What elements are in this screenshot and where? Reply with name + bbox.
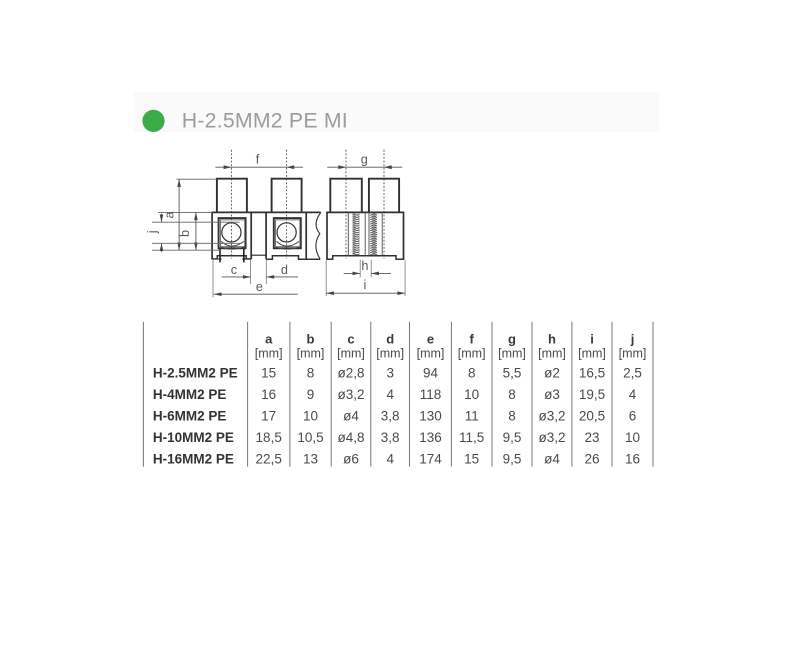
- svg-text:[mm]: [mm]: [337, 347, 365, 361]
- svg-text:[mm]: [mm]: [376, 347, 404, 361]
- svg-text:11: 11: [465, 409, 479, 424]
- svg-text:i: i: [363, 278, 366, 292]
- svg-text:H-6MM2 PE: H-6MM2 PE: [153, 409, 227, 424]
- svg-text:ø2: ø2: [544, 366, 560, 381]
- svg-text:g: g: [508, 332, 516, 347]
- svg-text:[mm]: [mm]: [255, 347, 283, 361]
- svg-text:4: 4: [629, 387, 637, 402]
- svg-text:h: h: [361, 259, 368, 273]
- svg-text:d: d: [281, 263, 288, 277]
- svg-text:ø3,2: ø3,2: [538, 430, 565, 445]
- svg-text:g: g: [361, 153, 368, 167]
- svg-text:b: b: [307, 332, 315, 347]
- svg-text:2,5: 2,5: [623, 366, 642, 381]
- svg-text:22,5: 22,5: [256, 452, 282, 467]
- svg-text:20,5: 20,5: [579, 409, 605, 424]
- svg-text:15: 15: [261, 366, 276, 381]
- svg-text:e: e: [427, 332, 434, 347]
- svg-text:10: 10: [303, 409, 318, 424]
- svg-text:d: d: [386, 332, 394, 347]
- svg-text:[mm]: [mm]: [417, 347, 445, 361]
- svg-text:[mm]: [mm]: [538, 347, 566, 361]
- svg-text:[mm]: [mm]: [619, 347, 647, 361]
- svg-text:19,5: 19,5: [579, 387, 605, 402]
- svg-text:9: 9: [307, 387, 315, 402]
- svg-text:174: 174: [419, 452, 442, 467]
- svg-text:H-10MM2 PE: H-10MM2 PE: [153, 430, 234, 445]
- svg-text:ø4: ø4: [343, 409, 359, 424]
- svg-text:18,5: 18,5: [256, 430, 282, 445]
- svg-text:[mm]: [mm]: [498, 347, 526, 361]
- svg-text:a: a: [265, 332, 273, 347]
- svg-text:10,5: 10,5: [297, 430, 323, 445]
- svg-text:H-4MM2 PE: H-4MM2 PE: [153, 387, 227, 402]
- svg-text:8: 8: [508, 409, 516, 424]
- svg-text:e: e: [256, 280, 263, 294]
- svg-text:ø3: ø3: [544, 387, 560, 402]
- svg-text:f: f: [470, 332, 475, 347]
- svg-text:h: h: [548, 332, 556, 347]
- svg-text:ø3,2: ø3,2: [538, 409, 565, 424]
- svg-text:3,8: 3,8: [381, 430, 400, 445]
- svg-text:[mm]: [mm]: [297, 347, 325, 361]
- svg-text:8: 8: [307, 366, 315, 381]
- svg-text:16,5: 16,5: [579, 366, 605, 381]
- svg-text:8: 8: [468, 366, 476, 381]
- svg-text:5,5: 5,5: [503, 366, 522, 381]
- svg-text:3: 3: [386, 366, 394, 381]
- svg-text:26: 26: [584, 452, 599, 467]
- svg-text:ø2,8: ø2,8: [337, 366, 364, 381]
- svg-text:10: 10: [625, 430, 640, 445]
- svg-text:c: c: [347, 332, 354, 347]
- svg-text:[mm]: [mm]: [578, 347, 606, 361]
- svg-text:94: 94: [423, 366, 439, 381]
- svg-text:3,8: 3,8: [381, 409, 400, 424]
- svg-text:4: 4: [386, 387, 394, 402]
- svg-text:9,5: 9,5: [503, 430, 522, 445]
- svg-text:11,5: 11,5: [459, 430, 484, 445]
- svg-text:9,5: 9,5: [503, 452, 522, 467]
- svg-text:c: c: [231, 263, 238, 277]
- svg-text:b: b: [178, 230, 192, 237]
- svg-text:136: 136: [419, 430, 442, 445]
- svg-text:6: 6: [629, 409, 637, 424]
- svg-text:16: 16: [261, 387, 276, 402]
- svg-text:13: 13: [303, 452, 318, 467]
- svg-text:16: 16: [625, 452, 640, 467]
- svg-text:118: 118: [420, 387, 442, 402]
- svg-text:15: 15: [464, 452, 479, 467]
- svg-text:8: 8: [508, 387, 516, 402]
- svg-text:130: 130: [419, 409, 442, 424]
- svg-text:ø4,8: ø4,8: [337, 430, 364, 445]
- svg-text:ø3,2: ø3,2: [337, 387, 364, 402]
- svg-text:H-16MM2 PE: H-16MM2 PE: [153, 452, 234, 467]
- svg-text:17: 17: [261, 409, 276, 424]
- svg-text:a: a: [163, 211, 177, 219]
- svg-text:j: j: [630, 332, 635, 347]
- svg-text:4: 4: [386, 452, 394, 467]
- svg-text:i: i: [590, 332, 594, 347]
- svg-text:H-2.5MM2 PE MI: H-2.5MM2 PE MI: [182, 109, 348, 133]
- svg-text:[mm]: [mm]: [458, 347, 486, 361]
- svg-text:f: f: [256, 153, 260, 167]
- svg-text:10: 10: [464, 387, 479, 402]
- svg-text:23: 23: [584, 430, 599, 445]
- svg-text:ø4: ø4: [544, 452, 560, 467]
- svg-text:ø6: ø6: [343, 452, 359, 467]
- svg-text:j: j: [145, 230, 159, 234]
- svg-text:H-2.5MM2 PE: H-2.5MM2 PE: [153, 366, 238, 381]
